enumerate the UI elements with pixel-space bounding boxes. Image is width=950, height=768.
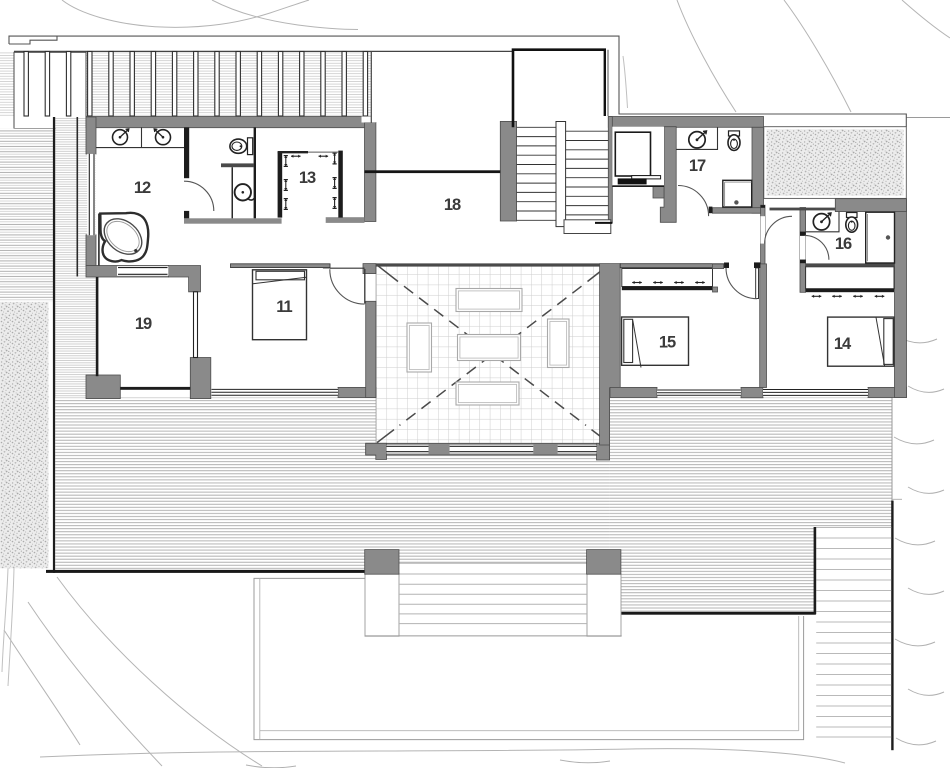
svg-text:13: 13 (299, 169, 316, 187)
svg-text:19: 19 (135, 315, 152, 333)
svg-text:15: 15 (659, 334, 676, 352)
svg-text:18: 18 (444, 196, 461, 214)
svg-text:16: 16 (835, 235, 852, 253)
svg-text:11: 11 (276, 298, 292, 316)
svg-text:14: 14 (834, 335, 852, 353)
svg-text:17: 17 (689, 157, 706, 175)
svg-text:12: 12 (134, 179, 151, 197)
